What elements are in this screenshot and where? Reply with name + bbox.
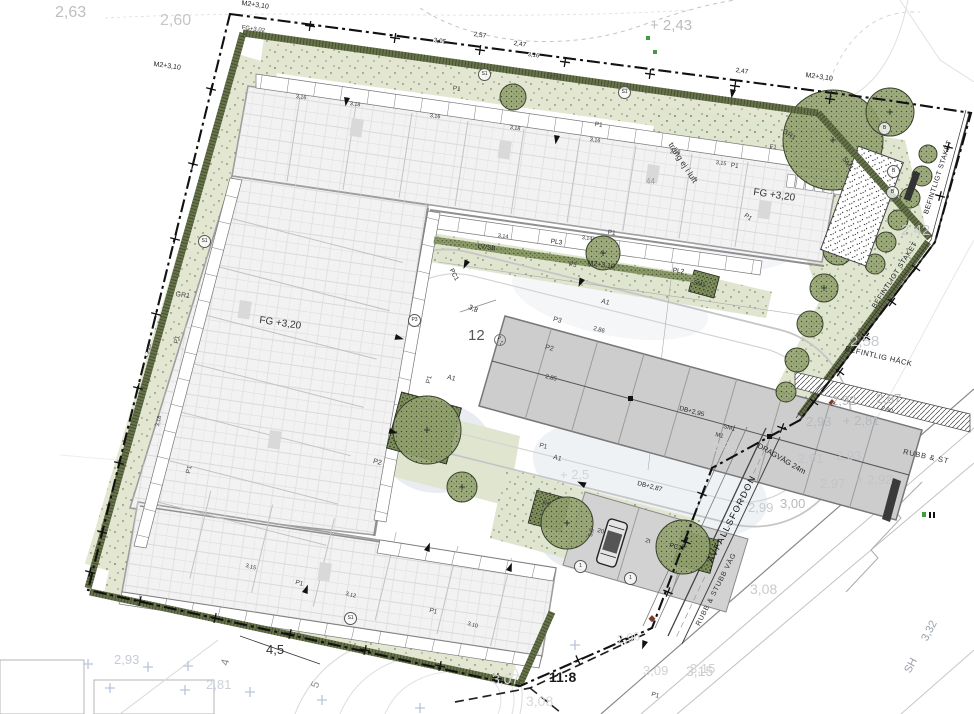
site-plan-drawing <box>0 0 974 714</box>
green-marker <box>646 36 650 40</box>
label-12-symbol <box>495 335 506 346</box>
site-plan-canvas: 2,632,60+ 2,432,422,582,922,872,93+ 2,81… <box>0 0 974 714</box>
green-marker <box>653 50 657 54</box>
green-marker <box>922 512 926 517</box>
